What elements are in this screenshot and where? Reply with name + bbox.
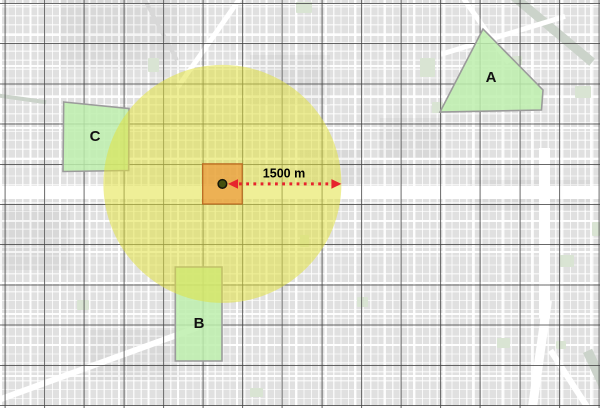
zone-b-label: B [194,315,205,332]
map-canvas: 1500 m ABC [0,0,600,408]
zone-c-label: C [90,128,101,145]
analysis-overlay: 1500 m ABC [0,0,600,408]
zone-a-label: A [486,69,497,86]
buffer-center-point[interactable] [218,180,227,189]
distance-label: 1500 m [263,167,305,181]
